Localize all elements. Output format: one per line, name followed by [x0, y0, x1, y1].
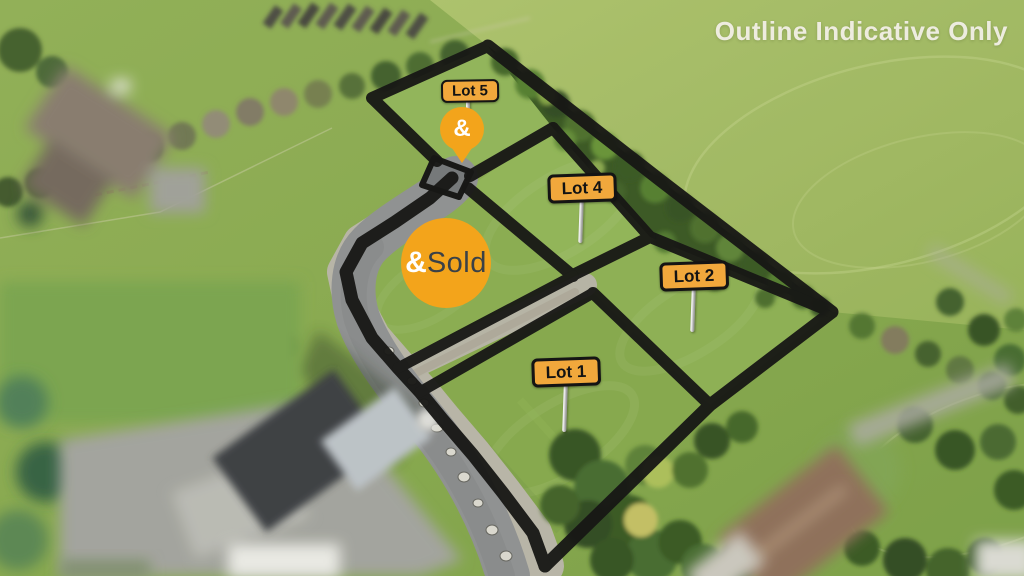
- lot4-sign: Lot 4: [547, 172, 617, 203]
- map-pin-tail: [450, 145, 474, 163]
- sold-badge-ampersand: &: [405, 248, 427, 278]
- lot2-sign: Lot 2: [659, 260, 729, 291]
- map-pin-symbol: &: [453, 115, 470, 143]
- watermark-outline-indicative: Outline Indicative Only: [715, 16, 1008, 47]
- brand-map-pin-icon: &: [440, 107, 484, 151]
- lot5-sign: Lot 5: [441, 79, 499, 103]
- aerial-subdivision-photo: Outline Indicative Only Lot 5 Lot 4 Lot …: [0, 0, 1024, 576]
- sold-badge-label: Sold: [427, 249, 487, 278]
- sold-badge: &Sold: [401, 218, 491, 308]
- lot1-sign: Lot 1: [531, 356, 601, 387]
- aerial-photo-background: [0, 0, 1024, 576]
- light-wash: [0, 0, 1024, 576]
